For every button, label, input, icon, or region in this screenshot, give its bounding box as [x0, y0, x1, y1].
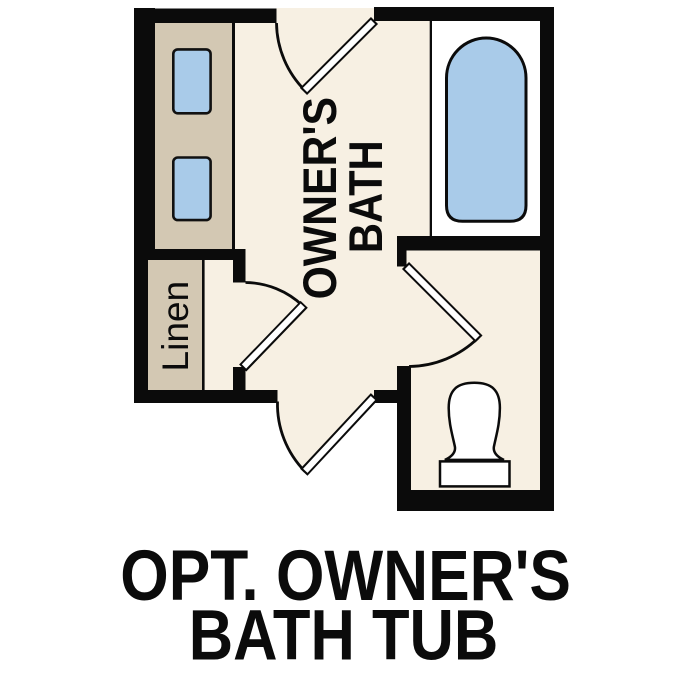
svg-text:OWNER'S: OWNER'S: [293, 97, 347, 299]
svg-text:Linen: Linen: [154, 281, 196, 372]
svg-text:BATH TUB: BATH TUB: [189, 596, 499, 675]
svg-text:BATH: BATH: [339, 140, 392, 253]
